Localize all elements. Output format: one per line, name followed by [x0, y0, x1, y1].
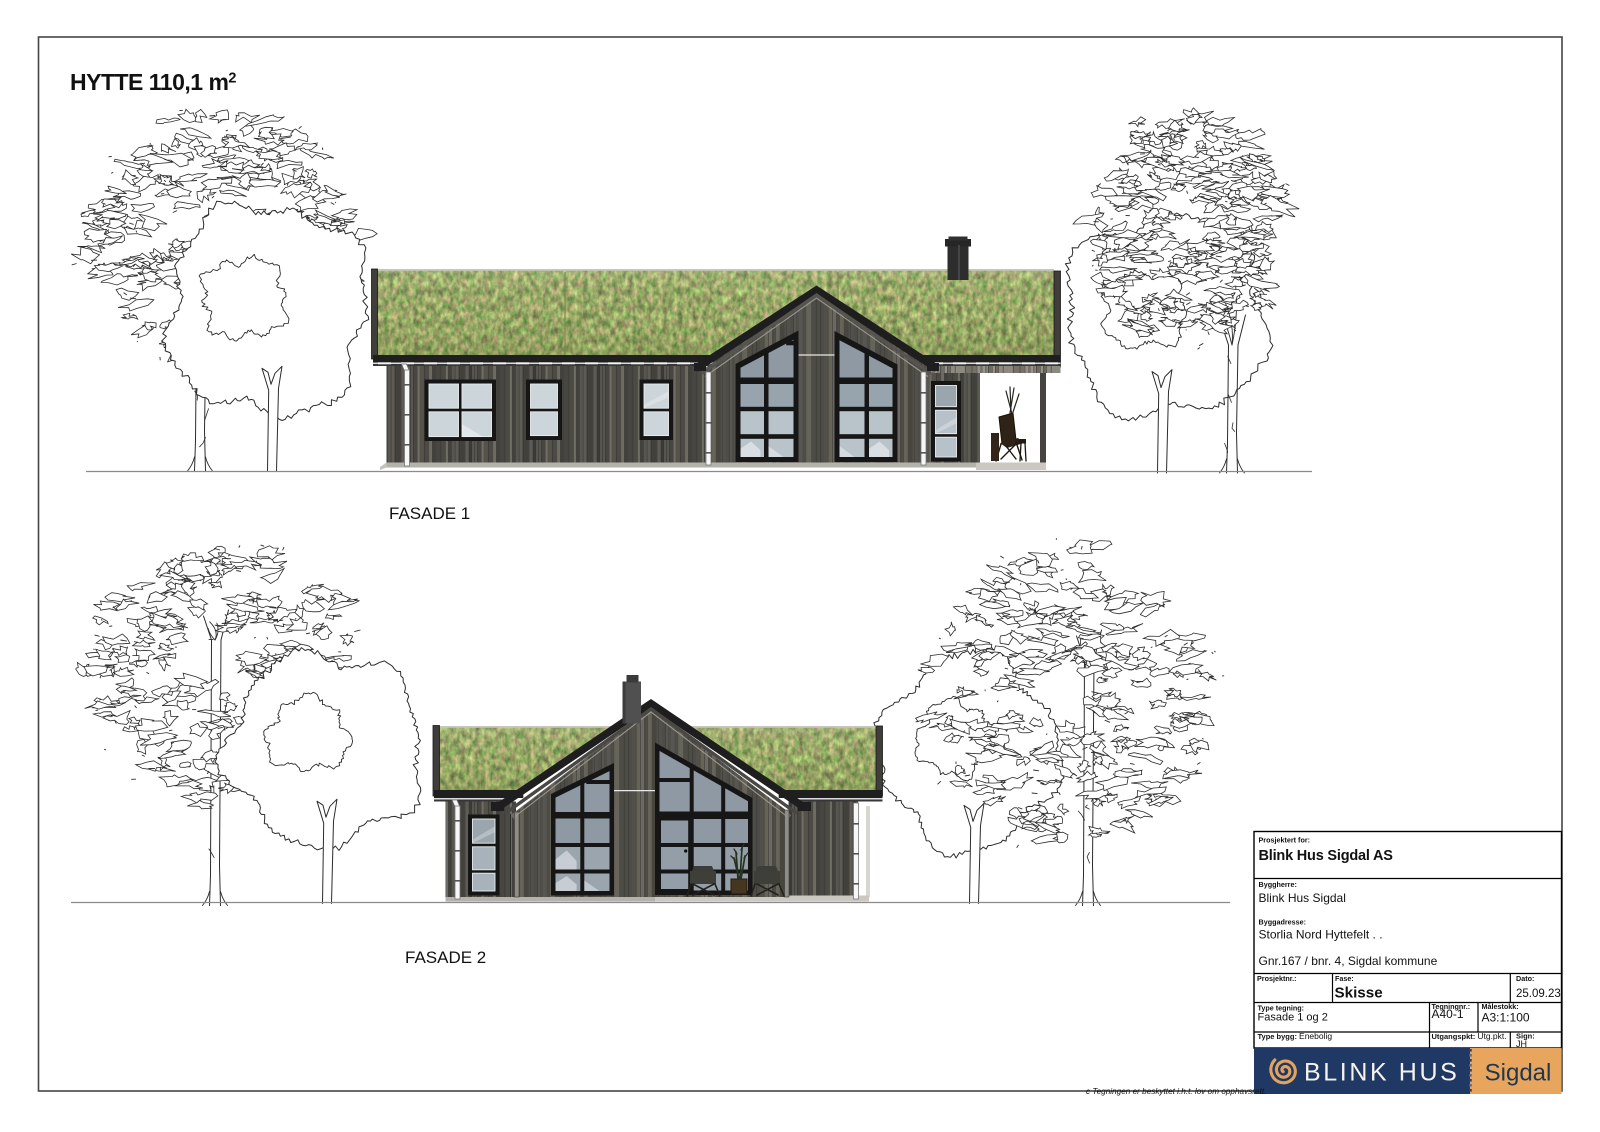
svg-text:Fasade 1 og 2: Fasade 1 og 2	[1258, 1012, 1328, 1024]
svg-text:Prosjektnr.:: Prosjektnr.:	[1257, 974, 1297, 983]
svg-text:Byggherre:: Byggherre:	[1259, 880, 1297, 889]
svg-text:FASADE 2: FASADE 2	[405, 948, 486, 967]
svg-text:FASADE 1: FASADE 1	[389, 504, 470, 523]
svg-text:Dato:: Dato:	[1516, 974, 1534, 983]
svg-text:Storlia Nord Hyttefelt . .: Storlia Nord Hyttefelt . .	[1259, 928, 1383, 942]
svg-text:Blink Hus Sigdal: Blink Hus Sigdal	[1259, 891, 1346, 905]
svg-text:c Tegningen er beskyttet i.h.: c Tegningen er beskyttet i.h.t. lov om o…	[1086, 1087, 1266, 1096]
svg-text:Skisse: Skisse	[1335, 985, 1383, 1002]
svg-text:Blink Hus Sigdal AS: Blink Hus Sigdal AS	[1259, 848, 1394, 864]
svg-text:Utgangspkt: Utg.pkt.: Utgangspkt: Utg.pkt.	[1432, 1031, 1507, 1041]
svg-text:JH: JH	[1516, 1039, 1527, 1049]
svg-text:Prosjektert for:: Prosjektert for:	[1259, 836, 1311, 845]
svg-text:BLINK HUS: BLINK HUS	[1304, 1059, 1459, 1087]
svg-text:HYTTE 110,1 m2: HYTTE 110,1 m2	[70, 69, 236, 95]
svg-text:A40-1: A40-1	[1432, 1007, 1464, 1021]
svg-text:25.09.23: 25.09.23	[1516, 988, 1561, 1000]
svg-text:Fase:: Fase:	[1335, 974, 1354, 983]
svg-text:Type bygg: Enebolig: Type bygg: Enebolig	[1258, 1031, 1333, 1041]
svg-text:A3:1:100: A3:1:100	[1482, 1011, 1530, 1025]
svg-text:Byggadresse:: Byggadresse:	[1259, 918, 1307, 927]
svg-text:Gnr.167 / bnr. 4, Sigdal kommu: Gnr.167 / bnr. 4, Sigdal kommune	[1259, 954, 1438, 968]
svg-text:Sigdal: Sigdal	[1485, 1060, 1552, 1087]
